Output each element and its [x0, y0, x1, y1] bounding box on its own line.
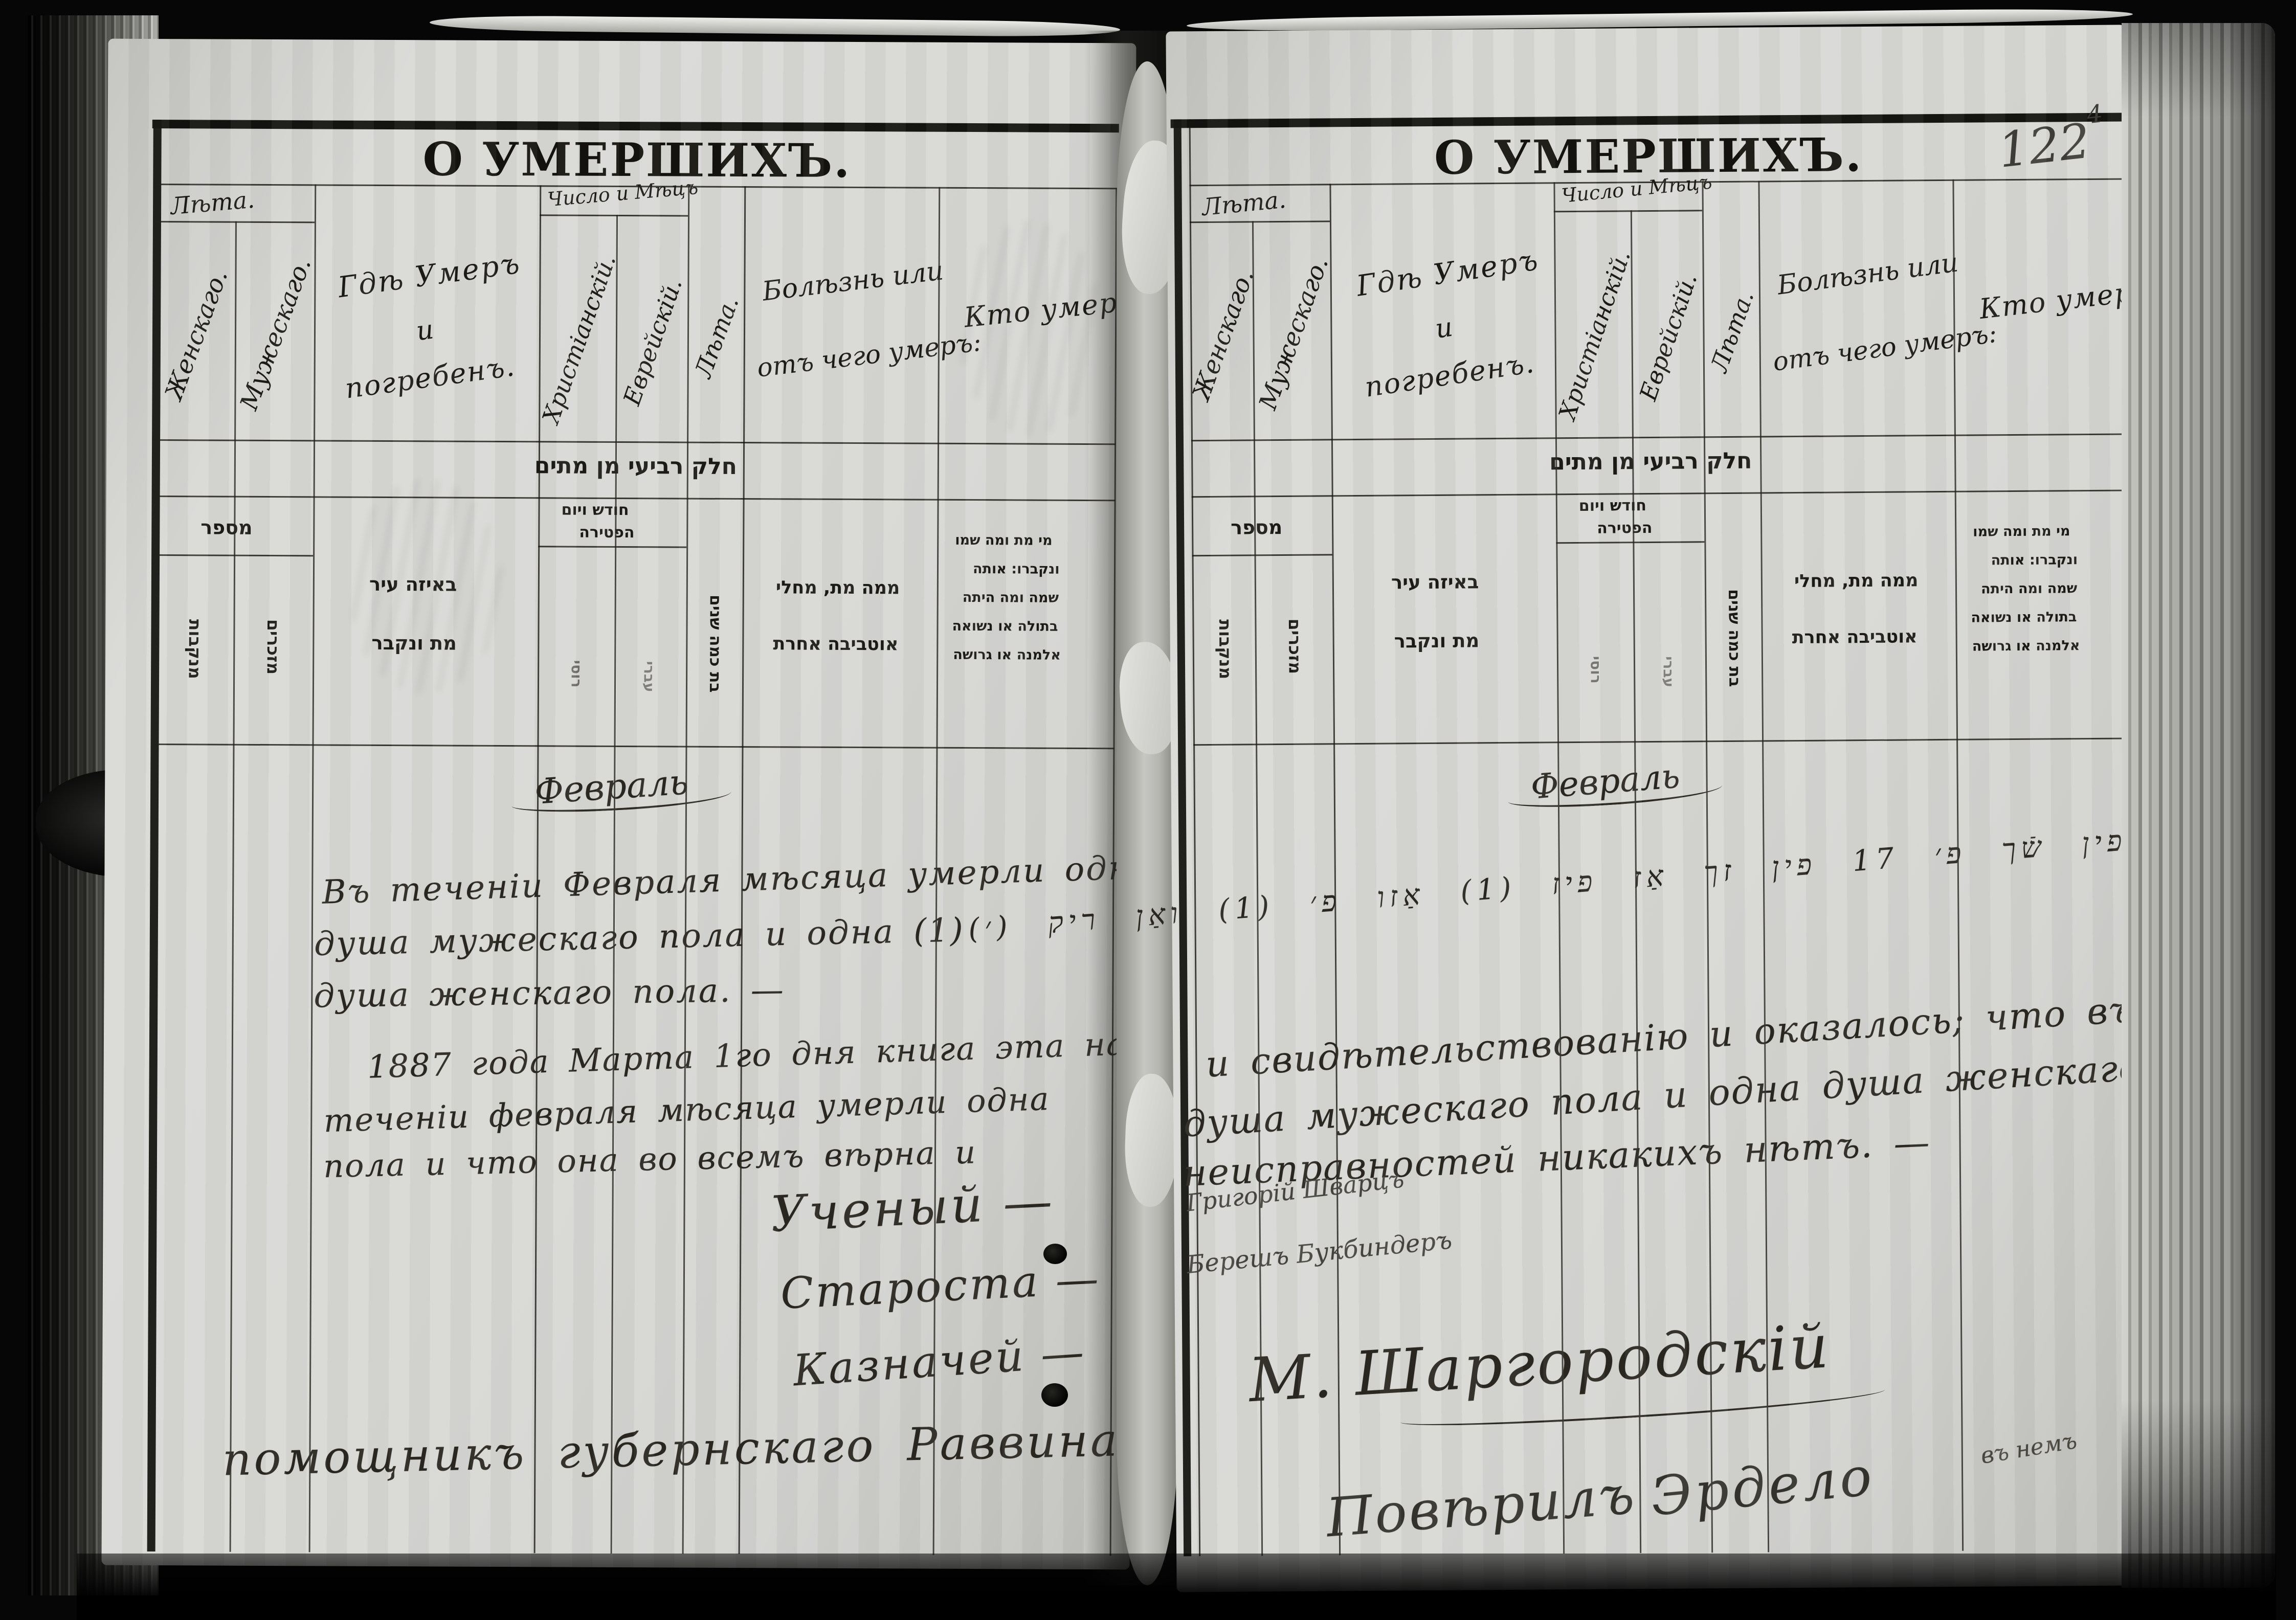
- col-christian-label: Христіанскій.: [1553, 246, 1636, 423]
- col-where-died-line3: погребенъ.: [343, 350, 517, 405]
- col-who-he-line5: אלמנה או גרושה: [953, 647, 1061, 663]
- rule: [1189, 119, 1201, 1556]
- bottom-shadow: [77, 1554, 2276, 1620]
- page-edge-top-left: [430, 15, 1120, 37]
- right-page: О УМЕРШИХЪ. 1224 Лѣта.: [1166, 25, 2135, 1592]
- rule: [538, 546, 686, 548]
- col-cause-he-line1: ממה מת, מחלי: [1794, 570, 1919, 592]
- col-males-he: מזכרים: [1285, 619, 1305, 674]
- col-date-he-line1: חודש ויום: [1579, 497, 1646, 515]
- col-date-heb-he: עברי: [640, 661, 657, 692]
- col-illness-line2: отъ чего умеръ:: [1771, 319, 1999, 377]
- hole: [1041, 1383, 1068, 1407]
- col-illness-line1: Болѣзнь или: [761, 255, 945, 307]
- col-where-died-line2: и: [414, 314, 435, 347]
- col-age-he: בת כמה שנים: [706, 595, 725, 692]
- right-table: О УМЕРШИХЪ. 1224 Лѣта.: [1171, 112, 2136, 1556]
- col-date-he-line2: הפטירה: [1597, 519, 1652, 537]
- col-cause-he-line2: אוטביבה אחרת: [773, 634, 898, 655]
- col-date-he-line2: הפטירה: [579, 524, 634, 542]
- col-age-label: Лѣта.: [1705, 287, 1759, 375]
- official-uchenyi: Ученый —: [769, 1172, 1056, 1243]
- col-christian-label: Христіанскій.: [537, 251, 621, 426]
- rule: [153, 744, 1114, 749]
- col-where-died-line1: Гдѣ Умеръ: [1354, 243, 1542, 303]
- col-age-group-label: Лѣта.: [1201, 186, 1287, 221]
- col-number-he: מספר: [200, 516, 252, 538]
- border-top: [152, 120, 1119, 132]
- bleed-through-mark: [348, 479, 503, 694]
- col-who-he-line2: ונקברו: אותה: [973, 561, 1060, 577]
- col-who-he-line4: בתולה או נשואה: [1971, 609, 2077, 625]
- bleed-through-mark: [958, 220, 1102, 436]
- col-who-he-line5: אלמנה או גרושה: [1972, 638, 2080, 654]
- col-who-he-line3: שמה ומה היתה: [963, 590, 1059, 606]
- assistant-rabbi-line: помощникъ губернскаго Раввина: [222, 1413, 1121, 1486]
- signature-name: Эрдело: [1648, 1445, 1877, 1528]
- summary-line: душа женскаго пола. —: [314, 971, 785, 1015]
- col-female-label: Женскаго.: [160, 266, 234, 403]
- summary-line: душа мужескаго пола и одна (1): [314, 911, 965, 963]
- left-page: О УМЕРШИХЪ. Лѣта. Женскаго. Мужескаго.: [101, 39, 1136, 1570]
- col-where-died-line3: погребенъ.: [1363, 347, 1536, 403]
- col-who-he-line2: ונקברו: אותה: [1991, 552, 2078, 568]
- col-city-he-line1: באיזה עיר: [1391, 571, 1479, 593]
- border-top: [1171, 112, 2126, 128]
- col-date-heb-he: עברי: [1660, 656, 1677, 687]
- rule: [1190, 220, 1330, 223]
- col-date-rus-he: רוסי: [1587, 656, 1604, 684]
- rule: [230, 221, 237, 1552]
- attestation-line: 1887 года Марта 1го дня книга эта на: [367, 1025, 1127, 1085]
- metrical-book-photo: О УМЕРШИХЪ. Лѣта. Женскаго. Мужескаго.: [0, 0, 2296, 1620]
- page-number-main: 122: [1996, 114, 2093, 179]
- signature-starosta: Берешъ Букбиндеръ: [1186, 1226, 1454, 1279]
- col-illness-line1: Болѣзнь или: [1775, 247, 1960, 301]
- col-age-he: בת כמה שנים: [1725, 589, 1744, 687]
- col-city-he-line2: מת ונקבר: [1394, 629, 1480, 652]
- col-who-he-line1: מי מת ומה שמו: [955, 532, 1052, 549]
- col-date-he-line1: חודש ויום: [561, 501, 629, 520]
- col-who-he-line4: בתולה או נשואה: [952, 618, 1058, 635]
- rule: [1556, 541, 1704, 544]
- yiddish-handwriting-line: פ׳ 19 פין שֿך פ׳ 17 פין זך אַז פיז (1) א…: [1179, 813, 2278, 930]
- col-jewish-label: Еврейскій.: [618, 275, 687, 409]
- col-females-he: מנקבות: [1215, 619, 1236, 679]
- rule: [1554, 210, 1702, 212]
- page-stack-edge: [2122, 23, 2275, 1588]
- col-where-died-line1: Гдѣ Умеръ: [336, 246, 523, 304]
- col-who-he-line1: מי מת ומה שמו: [1973, 523, 2070, 539]
- rule: [155, 439, 1116, 445]
- rule: [309, 184, 317, 1552]
- border-left: [147, 120, 162, 1551]
- page-number: 1224: [1996, 111, 2109, 179]
- attestation-line: пола и что она во всемъ вѣрна и: [323, 1133, 977, 1185]
- col-date-rus-he: רוסי: [568, 660, 585, 688]
- official-kaznachei: Казначей —: [792, 1326, 1087, 1396]
- col-illness-line2: отъ чего умеръ:: [755, 327, 983, 382]
- rule: [540, 214, 688, 216]
- hebrew-band-title: חלק רביעי מן מתים: [1173, 445, 2128, 478]
- col-male-label: Мужескаго.: [235, 254, 317, 414]
- summary-line: Въ теченіи Февраля мѣсяца умерли одна: [322, 848, 1153, 912]
- col-jewish-label: Еврейскій.: [1634, 269, 1703, 404]
- attestation-line: теченіи февраля мѣсяца умерли одна: [323, 1080, 1051, 1139]
- signature-verified: Повѣрилъ: [1324, 1463, 1638, 1549]
- col-number-he: מספר: [1231, 516, 1283, 539]
- signature-note: въ немъ: [1979, 1428, 2079, 1469]
- col-females-he: מנקבות: [185, 619, 206, 679]
- col-males-he: מזכרים: [263, 619, 283, 675]
- left-table: О УМЕРШИХЪ. Лѣта. Женскаго. Мужескаго.: [150, 120, 1118, 1556]
- hebrew-band-title: חלק רביעי מן מתים: [155, 451, 1117, 481]
- col-who-he-line3: שמה ומה היתה: [1981, 580, 2077, 597]
- hole: [1043, 1244, 1067, 1264]
- col-cause-he-line2: אוטביבה אחרת: [1792, 626, 1918, 648]
- border-left: [1174, 119, 1192, 1556]
- page-number-sup: 4: [2085, 99, 2104, 129]
- col-male-label: Мужескаго.: [1254, 253, 1334, 413]
- rule: [155, 496, 1116, 501]
- col-cause-he-line1: ממה מת, מחלי: [776, 577, 900, 598]
- col-where-died-line2: и: [1433, 312, 1455, 345]
- col-age-label: Лѣта.: [689, 292, 744, 381]
- col-female-label: Женскаго.: [1187, 266, 1259, 404]
- rule: [1192, 554, 1332, 556]
- col-age-group-label: Лѣта.: [169, 186, 256, 220]
